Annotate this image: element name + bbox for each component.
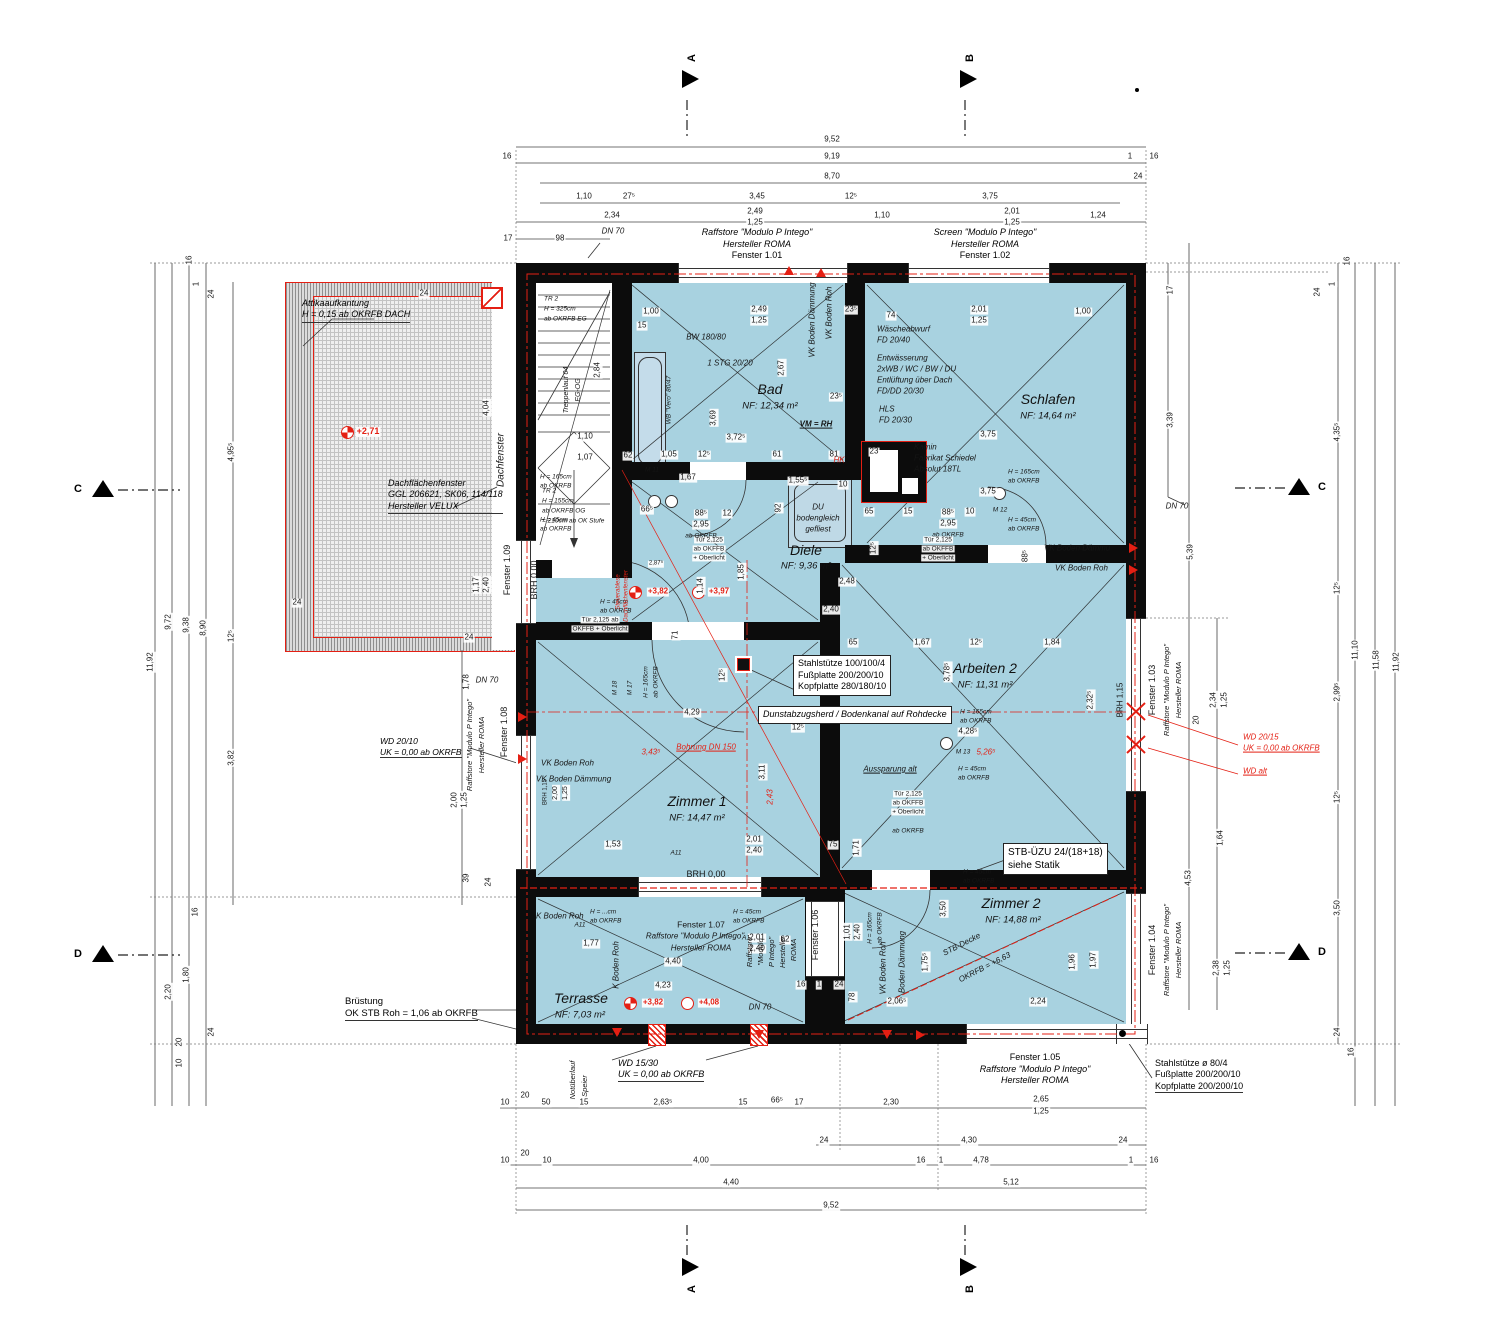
dimension-label: 24 [1334, 1027, 1343, 1038]
dimension-label: 1,97 [1090, 951, 1099, 969]
dimension-label: 20 [520, 1092, 531, 1101]
window-note-f101: Raffstore "Modulo P Intego" Hersteller R… [702, 227, 813, 262]
annotation-label: VM = RH [800, 421, 833, 430]
annotation-label: ab OKRFB [1008, 525, 1039, 532]
annotation-label: DN 70 [602, 228, 625, 237]
dimension-label: 1,10 [873, 212, 891, 221]
dimension-label: 62 [623, 452, 634, 461]
door-zimmer1 [652, 622, 744, 640]
dimension-label: 9,52 [822, 1202, 840, 1211]
annotation-label: Absolut 18TL [914, 466, 961, 475]
annotation-label: M 17 [626, 681, 633, 695]
dimension-label: 16 [1149, 153, 1160, 162]
red-survey-mark [518, 712, 527, 722]
annotation-label: Raffstore [746, 937, 754, 967]
dimension-label: 2,30 [882, 1099, 900, 1108]
section-arrow-b-bottom [960, 1258, 977, 1276]
dimension-label: 2,34 [1210, 691, 1219, 709]
dimension-label: +3,82 [642, 999, 664, 1008]
annotation-label: DN 70 [1166, 503, 1189, 512]
dimension-label: 4,78 [972, 1157, 990, 1166]
dimension-label: 10 [500, 1157, 511, 1166]
dimension-label: 24 [292, 599, 303, 608]
dimension-label: +3,97 [708, 588, 730, 597]
dimension-label: 2,67 [778, 359, 787, 377]
dimension-label: 2,01 [1003, 208, 1021, 217]
callout-line: Hersteller VELUX [388, 501, 503, 512]
annotation-label: Entlüftung über Dach [877, 377, 952, 386]
room-label-zimmer2: Zimmer 2 [981, 895, 1040, 911]
dimension-label: 2,40 [822, 606, 840, 615]
note-line: Hersteller ROMA [702, 239, 813, 251]
dimension-label: 1,24 [1089, 212, 1107, 221]
red-survey-mark [612, 1028, 622, 1037]
callout-line: Stahlstütze ø 80/4 [1155, 1058, 1243, 1069]
annotation-label: H = ...cm [590, 908, 616, 915]
annotation-label: Hersteller ROMA [1175, 922, 1183, 979]
dimension-label: 10 [965, 508, 976, 517]
dimension-label: 17 [794, 1099, 805, 1108]
annotation-label: BRH 0,00 [686, 870, 725, 880]
window-f104 [1126, 893, 1146, 1026]
annotation-label: Fenster 1.04 [1148, 925, 1158, 976]
dimension-label: 10 [838, 481, 849, 490]
dimension-label: 74 [886, 312, 897, 321]
dimension-label: + Oberlicht [891, 808, 925, 815]
annotation-label: Fenster 1.06 [811, 910, 821, 961]
floor-plan-canvas: Bad NF: 12,34 m² Schlafen NF: 14,64 m² D… [0, 0, 1500, 1339]
callout-line: STB-ÜZU 24/(18+18) [1008, 846, 1103, 859]
annotation-label: ab OKRFB [540, 525, 571, 532]
dimension-label: 4,28⁵ [958, 728, 979, 737]
callout-stb-uezu: STB-ÜZU 24/(18+18) siehe Statik [1003, 843, 1108, 875]
annotation-label: Hersteller ROMA [671, 945, 731, 954]
dimension-label: Tür 2,125 ab [581, 616, 620, 623]
note-line: Screen "Modulo P Intego" [934, 227, 1037, 239]
dimension-label: 1,67 [679, 474, 697, 483]
annotation-label: P Intego" [768, 937, 776, 967]
fixture-symbol [665, 495, 678, 508]
dimension-label: 10 [542, 1157, 553, 1166]
dimension-label: 1,17 [473, 576, 482, 594]
window-f105 [966, 1024, 1118, 1044]
annotation-label: VK Boden Dämmu [1044, 545, 1110, 554]
dimension-label: 20 [1193, 715, 1202, 726]
annotation-label: H = 165cm [960, 708, 992, 715]
dimension-label: 71 [672, 630, 681, 641]
dimension-label: 8,90 [200, 619, 209, 637]
room-area-diele: NF: 9,36 m² [781, 561, 831, 572]
dimension-label: +3,82 [647, 588, 669, 597]
dimension-label: ab OKFFB [693, 545, 726, 552]
dimension-label: 9,38 [183, 616, 192, 634]
annotation-label: Raffstore "Modulo P Intego" [466, 699, 474, 791]
room-label-arbeiten2: Arbeiten 2 [953, 660, 1017, 676]
dimension-label: 16 [796, 981, 807, 990]
dimension-label: 3,75 [981, 193, 999, 202]
dimension-label: 1 [938, 1157, 944, 1166]
dimension-label: 2,34 [603, 212, 621, 221]
dimension-label: 78 [849, 992, 858, 1003]
wall-stair-bad [612, 283, 632, 560]
annotation-label: H = 165cm [1008, 468, 1040, 475]
dimension-label: 1,25 [1221, 691, 1230, 709]
dimension-label: 3,75 [979, 488, 997, 497]
dimension-label: 1,96 [1069, 953, 1078, 971]
dimension-label: 17 [1167, 285, 1176, 296]
dimension-label: 5,12 [1002, 1179, 1020, 1188]
section-label-a-bottom: A [686, 1285, 698, 1293]
dimension-label: 15 [637, 322, 648, 331]
dimension-label: 12⁵ [870, 541, 879, 555]
section-arrow-d-left [92, 945, 114, 962]
dimension-label: +4,08 [698, 999, 720, 1008]
fixture-symbol [940, 737, 953, 750]
annotation-label: ab OKRFB [958, 774, 989, 781]
dimension-label: 4,95⁵ [228, 442, 237, 463]
annotation-label: M 11 [645, 466, 659, 473]
dimension-label: 24 [485, 877, 494, 888]
dimension-label: ab OKFFB [922, 545, 955, 552]
section-arrow-a-bottom [682, 1258, 699, 1276]
annotation-label: HK [833, 457, 844, 466]
dimension-label: 2,48 [838, 578, 856, 587]
annotation-label: HLS [879, 406, 895, 415]
annotation-label: H = 325cm [544, 305, 576, 312]
annotation-label: BRH 1,15 [1117, 683, 1126, 718]
annotation-label: DU [812, 504, 824, 513]
annotation-label: ab OKRFB [652, 666, 659, 697]
annotation-label: H = 165cm [642, 666, 649, 698]
dimension-label: 1,75⁵ [922, 952, 931, 973]
annotation-label: VK Boden Roh [880, 942, 889, 995]
annotation-label: H = 45cm [733, 908, 761, 915]
dimension-label: 4,23 [654, 982, 672, 991]
dimension-label: 15 [579, 1099, 590, 1108]
annotation-label: H = 45cm [963, 868, 991, 875]
annotation-label: ab OKRFB [590, 917, 621, 924]
dimension-label: 61 [772, 451, 783, 460]
hatched-post [648, 1024, 666, 1046]
dimension-label: 1,77 [582, 940, 600, 949]
dimension-label: 15 [903, 508, 914, 517]
dimension-label: 66⁵ [640, 506, 654, 515]
dimension-label: 1 [193, 281, 202, 287]
callout-attika: Attikaaufkantung H = 0,15 ab OKRFB DACH [302, 298, 410, 323]
annotation-label: ab OKRFB [960, 717, 991, 724]
annotation-label: Treppenlauf 04 [563, 367, 571, 414]
callout-line: Kopfplatte 200/200/10 [1155, 1081, 1243, 1093]
dimension-label: 4,40 [722, 1179, 740, 1188]
red-survey-mark [784, 266, 794, 275]
dimension-label: 24 [419, 290, 430, 299]
callout-dunstabzug: Dunstabzugsherd / Bodenkanal auf Rohdeck… [758, 706, 952, 724]
annotation-label: DN 70 [749, 1004, 772, 1013]
dimension-label: 16 [186, 255, 195, 266]
dimension-label: 1,25 [1224, 959, 1233, 977]
callout-line: Dachflächenfenster [388, 478, 503, 489]
room-area-zimmer1: NF: 14,47 m² [669, 813, 724, 824]
annotation-label: WD 20/15 [1243, 734, 1279, 743]
annotation-label: TR 2 [542, 487, 556, 494]
dimension-label: 1,84 [1043, 639, 1061, 648]
dimension-label: 23⁵ [829, 393, 843, 402]
red-survey-mark [754, 1030, 764, 1039]
annotation-label: DN 70 [476, 677, 499, 686]
callout-wd2010: WD 20/10 UK = 0,00 ab OKRFB [380, 736, 462, 758]
annotation-label: ab OKRFB [733, 917, 764, 924]
dimension-label: 2,63⁵ [653, 1099, 674, 1108]
dimension-label: 2,84 [594, 361, 603, 379]
dimension-label: 15 [738, 1099, 749, 1108]
annotation-label: Fenster 1.09 [503, 545, 513, 596]
dimension-label: 9,72 [165, 613, 174, 631]
dimension-label: 24 [819, 1137, 830, 1146]
dimension-label: 1,25 [1032, 1108, 1050, 1117]
opening-stair [552, 560, 612, 578]
room-area-terrasse: NF: 7,03 m² [555, 1010, 605, 1021]
callout-line: UK = 0,00 ab OKRFB [618, 1069, 704, 1080]
dimension-label: 1,53 [604, 841, 622, 850]
dimension-label: 1 [816, 981, 822, 990]
annotation-label: VK Boden Roh [1055, 565, 1108, 574]
dimension-label: 1,80 [183, 966, 192, 984]
section-label-d-left: D [74, 948, 82, 960]
room-label-diele: Diele [790, 542, 822, 558]
dimension-label: 88⁵ [694, 510, 708, 519]
dimension-label: 4,53 [1185, 869, 1194, 887]
dimension-label: 12⁵ [1334, 790, 1343, 804]
dimension-label: 1,05 [660, 451, 678, 460]
dimension-label: 2,65 [1032, 1096, 1050, 1105]
annotation-label: FD/DD 20/30 [877, 388, 924, 397]
annotation-label: M 18 [611, 681, 618, 695]
level-marker-roof [341, 426, 354, 439]
window-note-f102: Screen "Modulo P Intego" Hersteller ROMA… [934, 227, 1037, 262]
callout-stahlstuetze2: Stahlstütze ø 80/4 Fußplatte 200/200/10 … [1155, 1058, 1243, 1093]
dimension-label: 4,04 [483, 399, 492, 417]
dimension-label: 1,01 [844, 923, 853, 941]
dimension-label: 16 [502, 153, 513, 162]
annotation-label: H = 45cm [958, 765, 986, 772]
dimension-label: 3,82 [228, 749, 237, 767]
annotation-label: ROMA [790, 939, 798, 962]
dimension-label: 1,10 [575, 193, 593, 202]
dimension-label: 1,14 [697, 577, 706, 595]
annotation-label: H = 165cm [866, 912, 873, 944]
annotation-label: 3,43⁵ [642, 749, 661, 758]
room-area-schlafen: NF: 14,64 m² [1020, 411, 1075, 422]
callout-line: WD 20/10 [380, 736, 462, 747]
dimension-label: 2,38 [1213, 959, 1222, 977]
dimension-label: 24 [1118, 1137, 1129, 1146]
dimension-label: 1 [1127, 153, 1133, 162]
dimension-label: 2,49 [746, 208, 764, 217]
annotation-label: A11 [670, 849, 681, 856]
dimension-label: 1,07 [576, 454, 594, 463]
annotation-label: Notüberlauf [569, 1061, 577, 1100]
dimension-label: 75 [828, 841, 839, 850]
window-f107 [638, 877, 762, 897]
section-label-a-top: A [686, 54, 698, 62]
red-survey-mark [816, 268, 826, 277]
red-survey-mark [518, 754, 527, 764]
dimension-label: 9,52 [823, 136, 841, 145]
annotation-label: ab OKRFB OG [542, 507, 585, 514]
dimension-label: 3,78⁵ [944, 662, 953, 683]
roof-corner-icon [481, 287, 503, 309]
dimension-label: 4,30 [960, 1137, 978, 1146]
dimension-label: 17 [503, 235, 514, 244]
annotation-label: 1 STG 20/20 [707, 360, 752, 369]
dimension-label: 2,32⁵ [1087, 690, 1096, 711]
door-bad [690, 462, 746, 480]
annotation-label: Steuerablese [616, 574, 623, 609]
dimension-label: 3,50 [940, 900, 949, 918]
room-area-zimmer2: NF: 14,88 m² [985, 915, 1040, 926]
dimension-label: +2,71 [356, 427, 381, 437]
dimension-label: 2,99⁵ [1334, 682, 1343, 703]
dimension-label: 3,75 [979, 431, 997, 440]
dimension-label: ab OKFFB [892, 799, 925, 806]
annotation-label: Kamin [914, 444, 937, 453]
dimension-label: 16 [1149, 1157, 1160, 1166]
section-label-b-top: B [964, 54, 976, 62]
window-f103 [1126, 618, 1146, 792]
dimension-label: 88⁵ [1022, 549, 1031, 563]
dimension-label: 24 [1314, 287, 1323, 298]
dimension-label: 10 [500, 1099, 511, 1108]
room-label-bad: Bad [758, 381, 783, 397]
annotation-label: Fenster 1.03 [1148, 665, 1158, 716]
dimension-label: 3,39 [1167, 411, 1176, 429]
annotation-label: Wäscheabwurf [877, 326, 930, 335]
dimension-label: 16 [916, 1157, 927, 1166]
annotation-label: Raffstore "Modulo P Intego" [646, 933, 744, 942]
dimension-label: 24 [208, 289, 217, 300]
dimension-label: 1,25 [562, 785, 570, 801]
dimension-label: 12⁵ [697, 451, 711, 460]
dimension-label: 11,58 [1373, 649, 1382, 670]
dimension-label: 9,19 [823, 153, 841, 162]
reference-dot [1135, 88, 1139, 92]
annotation-label: 5,26⁵ [977, 749, 996, 758]
dimension-label: 2,01 [970, 306, 988, 315]
dimension-label: 2,40 [854, 923, 863, 941]
dimension-label: 12⁵ [844, 193, 858, 202]
dimension-label: 2,06⁵ [887, 998, 908, 1007]
dimension-label: 23 [869, 448, 880, 457]
annotation-label: Raffstore "Modulo P Intego" [1163, 904, 1171, 996]
annotation-label: Speier [581, 1075, 589, 1097]
dimension-label: 2,49 [750, 306, 768, 315]
dimension-label: 1 [1329, 281, 1338, 287]
dimension-label: 4,00 [692, 1157, 710, 1166]
steel-column-marker [737, 658, 750, 671]
dimension-label: 12⁵ [969, 639, 983, 648]
annotation-label: WD alt [1243, 768, 1267, 777]
annotation-label: bodengleich [796, 515, 839, 524]
room-area-arbeiten2: NF: 11,31 m² [958, 680, 1013, 691]
annotation-label: M 12 [993, 506, 1007, 513]
level-marker-open [681, 997, 694, 1010]
dimension-label: + Oberlicht [692, 554, 726, 561]
annotation-label: Aussparung alt [863, 766, 916, 775]
callout-stahlstuetze1: Stahlstütze 100/100/4 Fußplatte 200/200/… [793, 655, 891, 696]
dimension-label: 1 [1128, 1157, 1134, 1166]
annotation-label: K Boden Roh [536, 913, 584, 922]
callout-line: Fußplatte 200/200/10 [798, 670, 886, 682]
dimension-label: Tür 2,125 [893, 790, 923, 797]
annotation-label: ab OKRFB [932, 531, 963, 538]
window-f102 [908, 263, 1050, 283]
dimension-label: 3,50 [1334, 899, 1343, 917]
dimension-label: 11,92 [147, 651, 156, 672]
note-line: Raffstore "Modulo P Intego" [702, 227, 813, 239]
annotation-label: VK Boden Dämmung [809, 282, 818, 357]
room-area-bad: NF: 12,34 m² [742, 401, 797, 412]
dimension-label: + Oberlicht [921, 554, 955, 561]
annotation-label: VK Boden Roh [541, 760, 594, 769]
dimension-label: 5,39 [1187, 543, 1196, 561]
dimension-label: 1,00 [642, 308, 660, 317]
dimension-label: 98 [555, 235, 566, 244]
annotation-label: H = 165cm [540, 473, 572, 480]
annotation-label: Fenster 1.08 [500, 707, 510, 758]
dimension-label: 66⁵ [770, 1097, 784, 1106]
callout-line: Attikaaufkantung [302, 298, 410, 309]
annotation-label: BW 180/80 [686, 334, 726, 343]
note-line: Hersteller ROMA [934, 239, 1037, 251]
callout-bruestung: Brüstung OK STB Roh = 1,06 ab OKRFB [345, 996, 478, 1021]
callout-line: UK = 0,00 ab OKRFB [380, 747, 462, 758]
dimension-label: 8,70 [823, 173, 841, 182]
callout-line: OK STB Roh = 1,06 ab OKRFB [345, 1008, 478, 1021]
dimension-label: 88⁵ [941, 509, 955, 518]
dimension-label: 1,25 [461, 791, 470, 809]
dimension-label: 2,24 [1029, 998, 1047, 1007]
callout-line: Brüstung [345, 996, 478, 1008]
dimension-label: 24 [464, 634, 475, 643]
note-line: Fenster 1.05 [980, 1052, 1091, 1064]
annotation-label: VK Boden Roh [826, 287, 835, 340]
dimension-label: 16 [1348, 1047, 1357, 1058]
dimension-label: 3,11 [759, 764, 768, 781]
annotation-label: BRH 1,15 [543, 779, 550, 805]
dimension-label: 4,40 [664, 958, 682, 967]
dimension-label: 3,72⁵ [726, 434, 747, 443]
callout-line: Fußplatte 200/200/10 [1155, 1069, 1243, 1080]
dimension-label: 1,78 [463, 673, 472, 691]
annotation-label: Boden Dämmung [899, 931, 908, 993]
dimension-label: 20 [520, 1150, 531, 1159]
annotation-label: H = 155cm [542, 497, 574, 504]
level-marker [624, 997, 637, 1010]
dimension-label: 11,92 [1393, 651, 1402, 672]
dimension-label: 11,10 [1352, 639, 1361, 660]
dimension-label: 65 [848, 639, 859, 648]
annotation-label: Hersteller ROMA [1175, 662, 1183, 719]
annotation-label: ab OKRFB EG [544, 315, 587, 322]
annotation-label: "Modulo [757, 938, 765, 965]
annotation-label: FD 20/30 [879, 417, 912, 426]
dimension-label: 2,00 [552, 785, 560, 801]
dimension-label: 1,00 [1074, 308, 1092, 317]
wall-west [516, 263, 536, 1044]
level-marker [629, 586, 642, 599]
dimension-label: 2,20 [165, 983, 174, 1001]
dimension-label: 4,29 [683, 709, 701, 718]
